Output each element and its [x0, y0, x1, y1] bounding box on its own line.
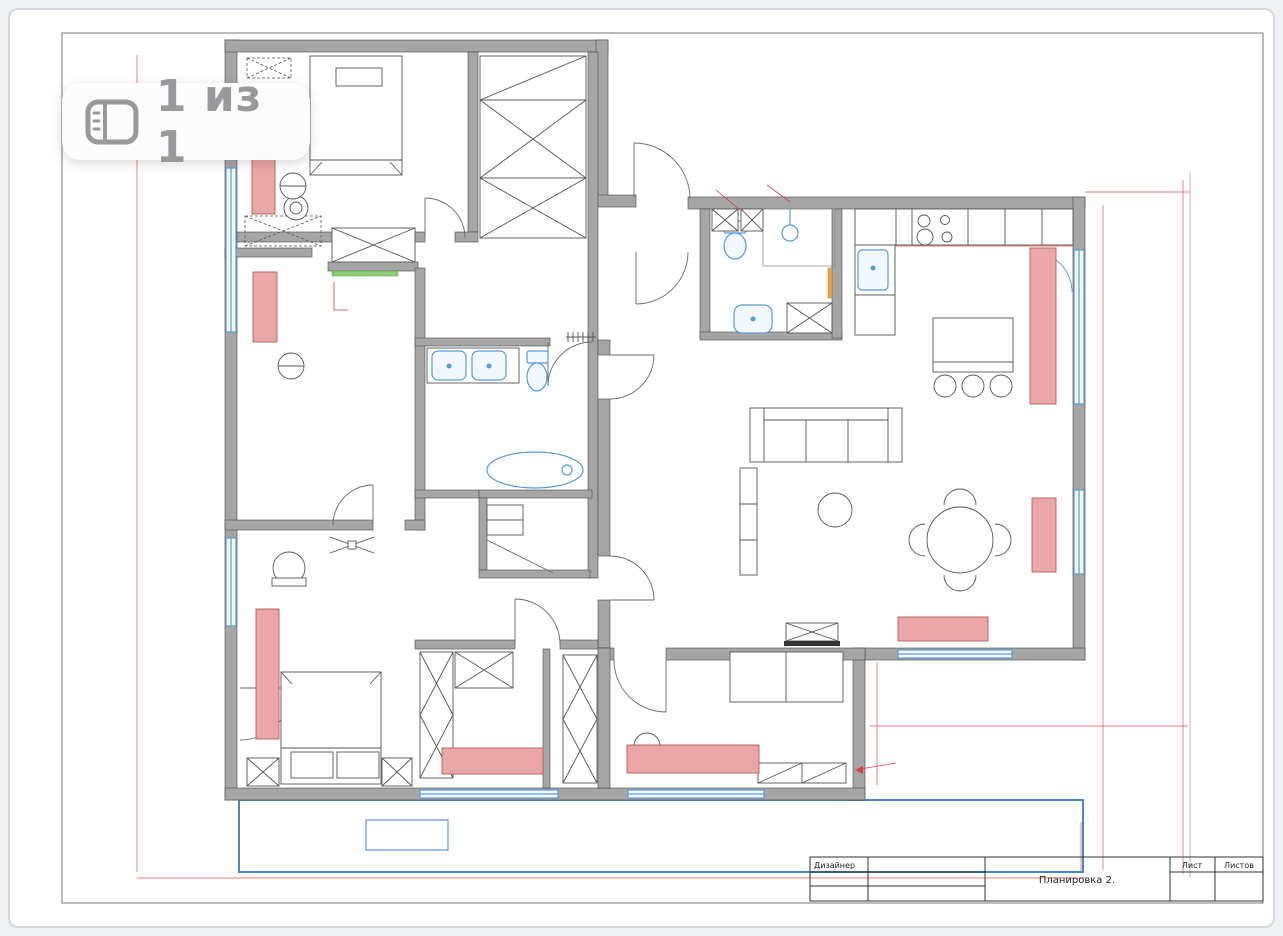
viewer-stage: Дизайнер Планировка 2. Лист Листов 1 из … [0, 0, 1283, 936]
climbing-wall-strip [332, 271, 398, 276]
area-label-box [366, 820, 448, 850]
page-counter-badge[interactable]: 1 из 1 [62, 83, 310, 160]
hall-wardrobe [332, 228, 415, 262]
dining-set [909, 489, 1011, 591]
gallery-pages-icon [84, 98, 140, 146]
cube-shelf [758, 763, 846, 783]
toilet-1 [527, 351, 548, 391]
bed-master [310, 56, 402, 175]
bed-second [281, 672, 381, 784]
ceiling-fan [330, 537, 374, 553]
sheets-label: Листов [1224, 861, 1254, 870]
plant [284, 196, 308, 220]
orange-strip [828, 268, 832, 298]
drawing-title: Планировка 2. [1039, 875, 1115, 886]
furniture-layer [245, 56, 1073, 786]
desk-chair-2 [278, 353, 304, 379]
coffee-table [818, 493, 852, 527]
double-sink [427, 348, 519, 383]
armchair [272, 552, 306, 586]
roomB-wardrobe [563, 655, 597, 783]
kitchen-sink-column [855, 245, 895, 335]
desk-chair-1 [280, 173, 306, 199]
sink-2 [734, 305, 772, 333]
kitchen-counter [855, 209, 1073, 245]
closet-wardrobe [480, 56, 586, 238]
title-block: Дизайнер Планировка 2. Лист Листов [810, 857, 1263, 901]
bathtub [487, 452, 583, 488]
shelving-unit [740, 468, 757, 575]
tv-unit [784, 623, 840, 646]
terrace-outline [239, 800, 1083, 872]
sofa [750, 408, 902, 462]
washer-dryer-stack [487, 505, 523, 535]
kitchen-island [933, 318, 1013, 397]
shower [763, 209, 835, 266]
designer-label: Дизайнер [814, 861, 855, 870]
sheet-label: Лист [1182, 861, 1203, 870]
page-counter-text: 1 из 1 [156, 71, 310, 173]
roomC-wardrobe [730, 652, 843, 702]
